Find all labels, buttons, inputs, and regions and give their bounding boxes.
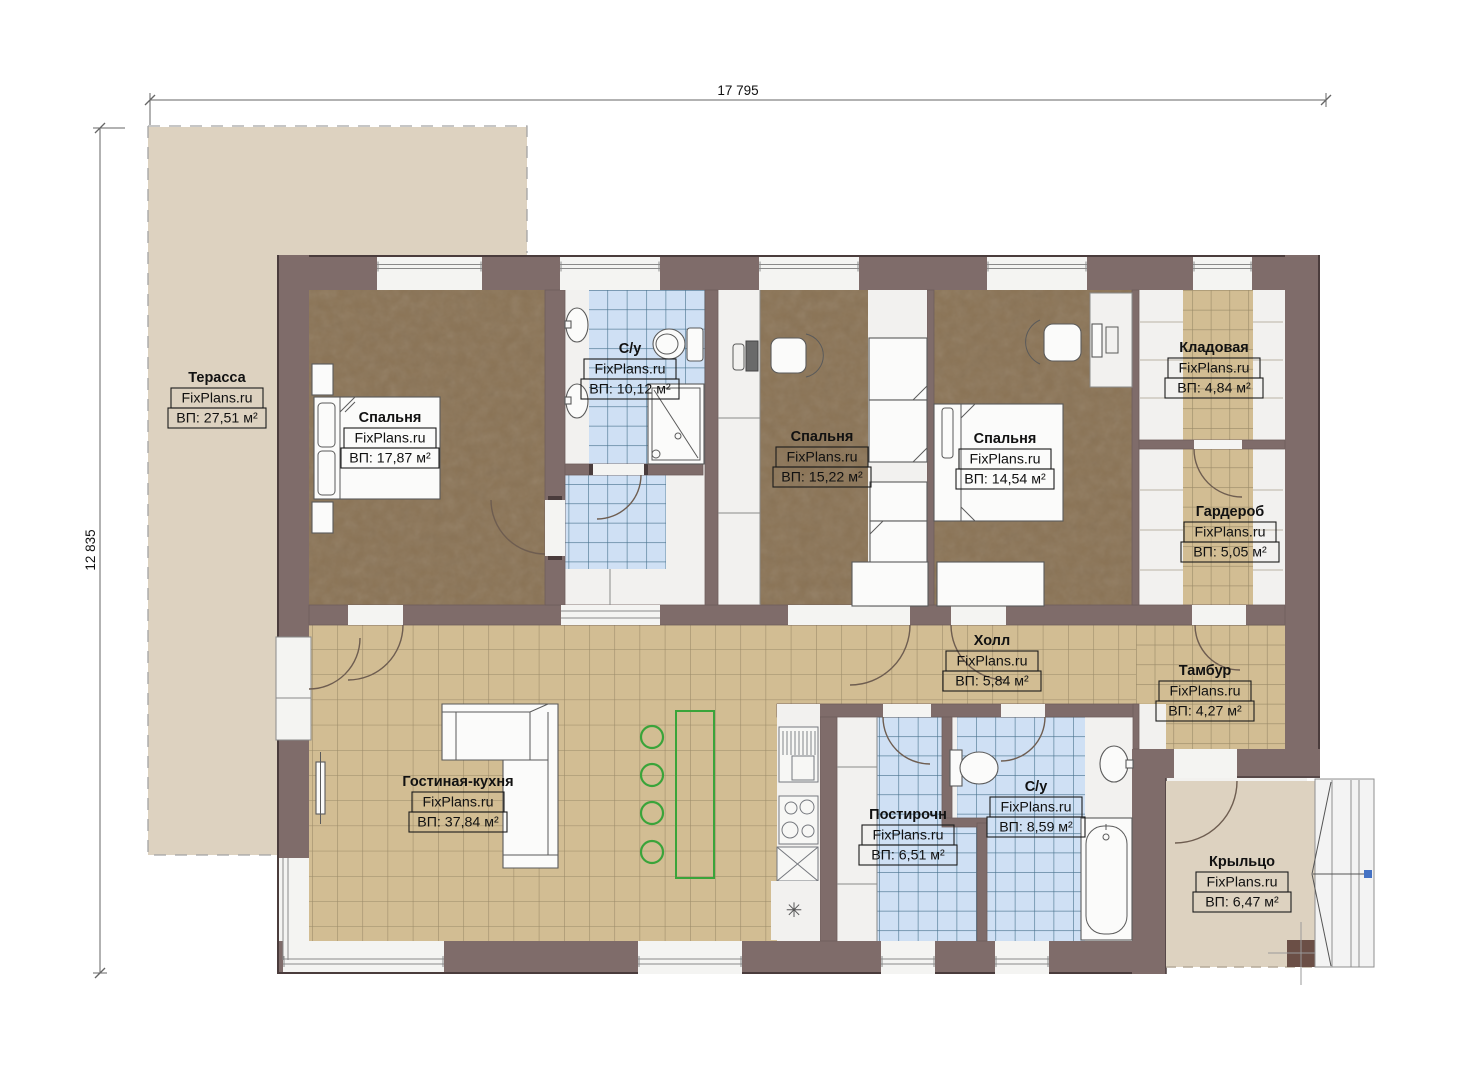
svg-text:ВП: 10,12 м²: ВП: 10,12 м² [589,382,671,398]
svg-text:FixPlans.ru: FixPlans.ru [1001,800,1072,816]
svg-text:Гардероб: Гардероб [1196,504,1265,520]
svg-text:FixPlans.ru: FixPlans.ru [423,795,494,811]
svg-text:Тамбур: Тамбур [1179,663,1232,679]
svg-text:Гостиная-кухня: Гостиная-кухня [402,774,513,790]
svg-text:ВП: 5,05 м²: ВП: 5,05 м² [1193,545,1267,561]
svg-text:ВП: 27,51 м²: ВП: 27,51 м² [176,411,258,427]
svg-text:ВП: 4,84 м²: ВП: 4,84 м² [1177,381,1251,397]
svg-text:ВП: 15,22 м²: ВП: 15,22 м² [781,470,863,486]
svg-text:Терасса: Терасса [188,370,246,386]
svg-text:С/у: С/у [619,341,642,357]
svg-text:Крыльцо: Крыльцо [1209,854,1275,870]
svg-text:FixPlans.ru: FixPlans.ru [873,828,944,844]
svg-text:ВП: 17,87 м²: ВП: 17,87 м² [349,451,431,467]
svg-text:ВП: 6,51 м²: ВП: 6,51 м² [871,848,945,864]
svg-text:FixPlans.ru: FixPlans.ru [1195,525,1266,541]
svg-text:Спальня: Спальня [974,431,1037,447]
svg-text:ВП: 14,54 м²: ВП: 14,54 м² [964,472,1046,488]
svg-text:ВП: 8,59 м²: ВП: 8,59 м² [999,820,1073,836]
svg-text:FixPlans.ru: FixPlans.ru [1207,875,1278,891]
svg-text:17 795: 17 795 [717,83,758,98]
svg-text:Кладовая: Кладовая [1179,340,1248,356]
svg-text:FixPlans.ru: FixPlans.ru [787,450,858,466]
svg-text:FixPlans.ru: FixPlans.ru [1170,684,1241,700]
svg-text:С/у: С/у [1025,779,1048,795]
svg-text:ВП: 5,84 м²: ВП: 5,84 м² [955,674,1029,690]
svg-text:12 835: 12 835 [83,529,98,570]
svg-text:ВП: 4,27 м²: ВП: 4,27 м² [1168,704,1242,720]
svg-text:FixPlans.ru: FixPlans.ru [182,391,253,407]
svg-text:FixPlans.ru: FixPlans.ru [595,362,666,378]
svg-text:ВП: 37,84 м²: ВП: 37,84 м² [417,815,499,831]
svg-text:FixPlans.ru: FixPlans.ru [1179,361,1250,377]
svg-text:Спальня: Спальня [359,410,422,426]
svg-text:Спальня: Спальня [791,429,854,445]
svg-text:ВП: 6,47 м²: ВП: 6,47 м² [1205,895,1279,911]
svg-text:Постирочн: Постирочн [869,807,947,823]
svg-text:✳: ✳ [786,900,803,922]
svg-text:FixPlans.ru: FixPlans.ru [355,431,426,447]
svg-text:FixPlans.ru: FixPlans.ru [970,452,1041,468]
svg-text:FixPlans.ru: FixPlans.ru [957,654,1028,670]
svg-text:Холл: Холл [974,633,1010,649]
